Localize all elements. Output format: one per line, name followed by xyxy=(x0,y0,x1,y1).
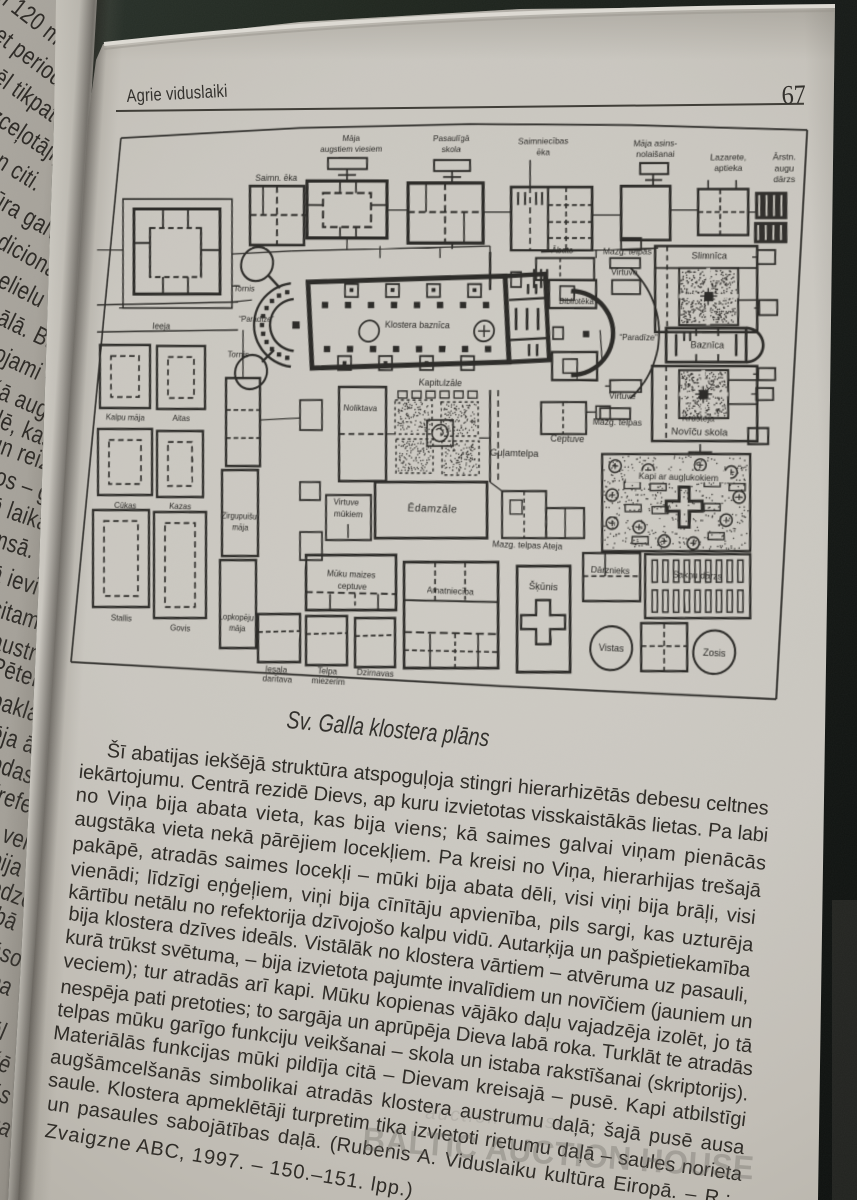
svg-text:Ābats: Ābats xyxy=(551,245,573,255)
svg-text:māja: māja xyxy=(229,623,247,634)
svg-text:Tornis: Tornis xyxy=(233,283,255,293)
svg-text:Dzirnavas: Dzirnavas xyxy=(356,667,394,679)
svg-text:Guļamtelpa: Guļamtelpa xyxy=(490,446,539,459)
svg-text:Stallis: Stallis xyxy=(110,613,132,624)
svg-text:Pasaulīgā: Pasaulīgā xyxy=(433,133,471,143)
svg-text:Zirgupuišu: Zirgupuišu xyxy=(221,511,257,522)
svg-text:Zosis: Zosis xyxy=(703,646,726,659)
svg-text:Mazg. telpas: Mazg. telpas xyxy=(603,246,652,256)
svg-text:Tornis: Tornis xyxy=(227,349,249,359)
svg-text:“Paradīze”: “Paradīze” xyxy=(238,314,274,324)
svg-text:Noliktava: Noliktava xyxy=(343,403,378,414)
svg-text:Mazg. telpas Ateja: Mazg. telpas Ateja xyxy=(492,539,563,552)
svg-text:miezerim: miezerim xyxy=(311,675,345,687)
svg-text:dārzs: dārzs xyxy=(773,174,795,184)
svg-text:Krusteja: Krusteja xyxy=(682,413,716,424)
svg-text:Novīču skola: Novīču skola xyxy=(671,425,728,438)
svg-text:Baznīca: Baznīca xyxy=(690,339,725,351)
svg-text:darītava: darītava xyxy=(262,673,293,685)
svg-text:Dārznieks: Dārznieks xyxy=(591,564,631,576)
svg-text:Sakņu dārzs: Sakņu dārzs xyxy=(672,569,722,582)
svg-text:Ēdamzāle: Ēdamzāle xyxy=(407,502,458,516)
svg-text:skola: skola xyxy=(441,144,462,154)
svg-text:aptieka: aptieka xyxy=(714,163,743,173)
svg-text:Ieeja: Ieeja xyxy=(152,320,171,331)
svg-text:Virtuve: Virtuve xyxy=(333,497,359,508)
svg-text:Ceptuve: Ceptuve xyxy=(550,433,585,445)
svg-text:Kalpu māja: Kalpu māja xyxy=(105,412,145,423)
svg-text:Saimn. ēka: Saimn. ēka xyxy=(255,172,298,183)
svg-text:Māja: Māja xyxy=(342,133,361,143)
svg-text:māja: māja xyxy=(232,522,250,533)
svg-text:mūkiem: mūkiem xyxy=(334,509,364,520)
svg-text:Šķūnis: Šķūnis xyxy=(528,580,558,593)
svg-text:Lopkopēju: Lopkopēju xyxy=(218,611,254,623)
svg-text:Māja asins-: Māja asins- xyxy=(633,138,678,148)
svg-text:Saimniecības: Saimniecības xyxy=(518,136,569,146)
svg-text:ceptuve: ceptuve xyxy=(337,581,367,592)
svg-text:Ārstn.: Ārstn. xyxy=(773,152,797,162)
svg-text:Lazarete,: Lazarete, xyxy=(710,152,747,162)
svg-text:Aitas: Aitas xyxy=(172,413,190,423)
svg-text:ēka: ēka xyxy=(536,147,551,157)
svg-text:“Paradīze”: “Paradīze” xyxy=(619,332,658,343)
svg-text:Kazas: Kazas xyxy=(169,501,192,512)
svg-text:augu: augu xyxy=(774,163,794,173)
svg-text:Slimnīca: Slimnīca xyxy=(691,250,728,261)
svg-text:Kapitulzāle: Kapitulzāle xyxy=(418,377,462,389)
svg-text:Mūku maizes: Mūku maizes xyxy=(327,568,377,580)
svg-text:Govis: Govis xyxy=(170,623,191,634)
svg-text:Klostera baznīca: Klostera baznīca xyxy=(385,319,451,331)
svg-text:Vistas: Vistas xyxy=(598,641,624,654)
svg-text:Amatniecība: Amatniecība xyxy=(426,585,474,597)
svg-text:augstiem viesiem: augstiem viesiem xyxy=(320,144,383,154)
svg-text:nolaišanai: nolaišanai xyxy=(636,149,676,159)
